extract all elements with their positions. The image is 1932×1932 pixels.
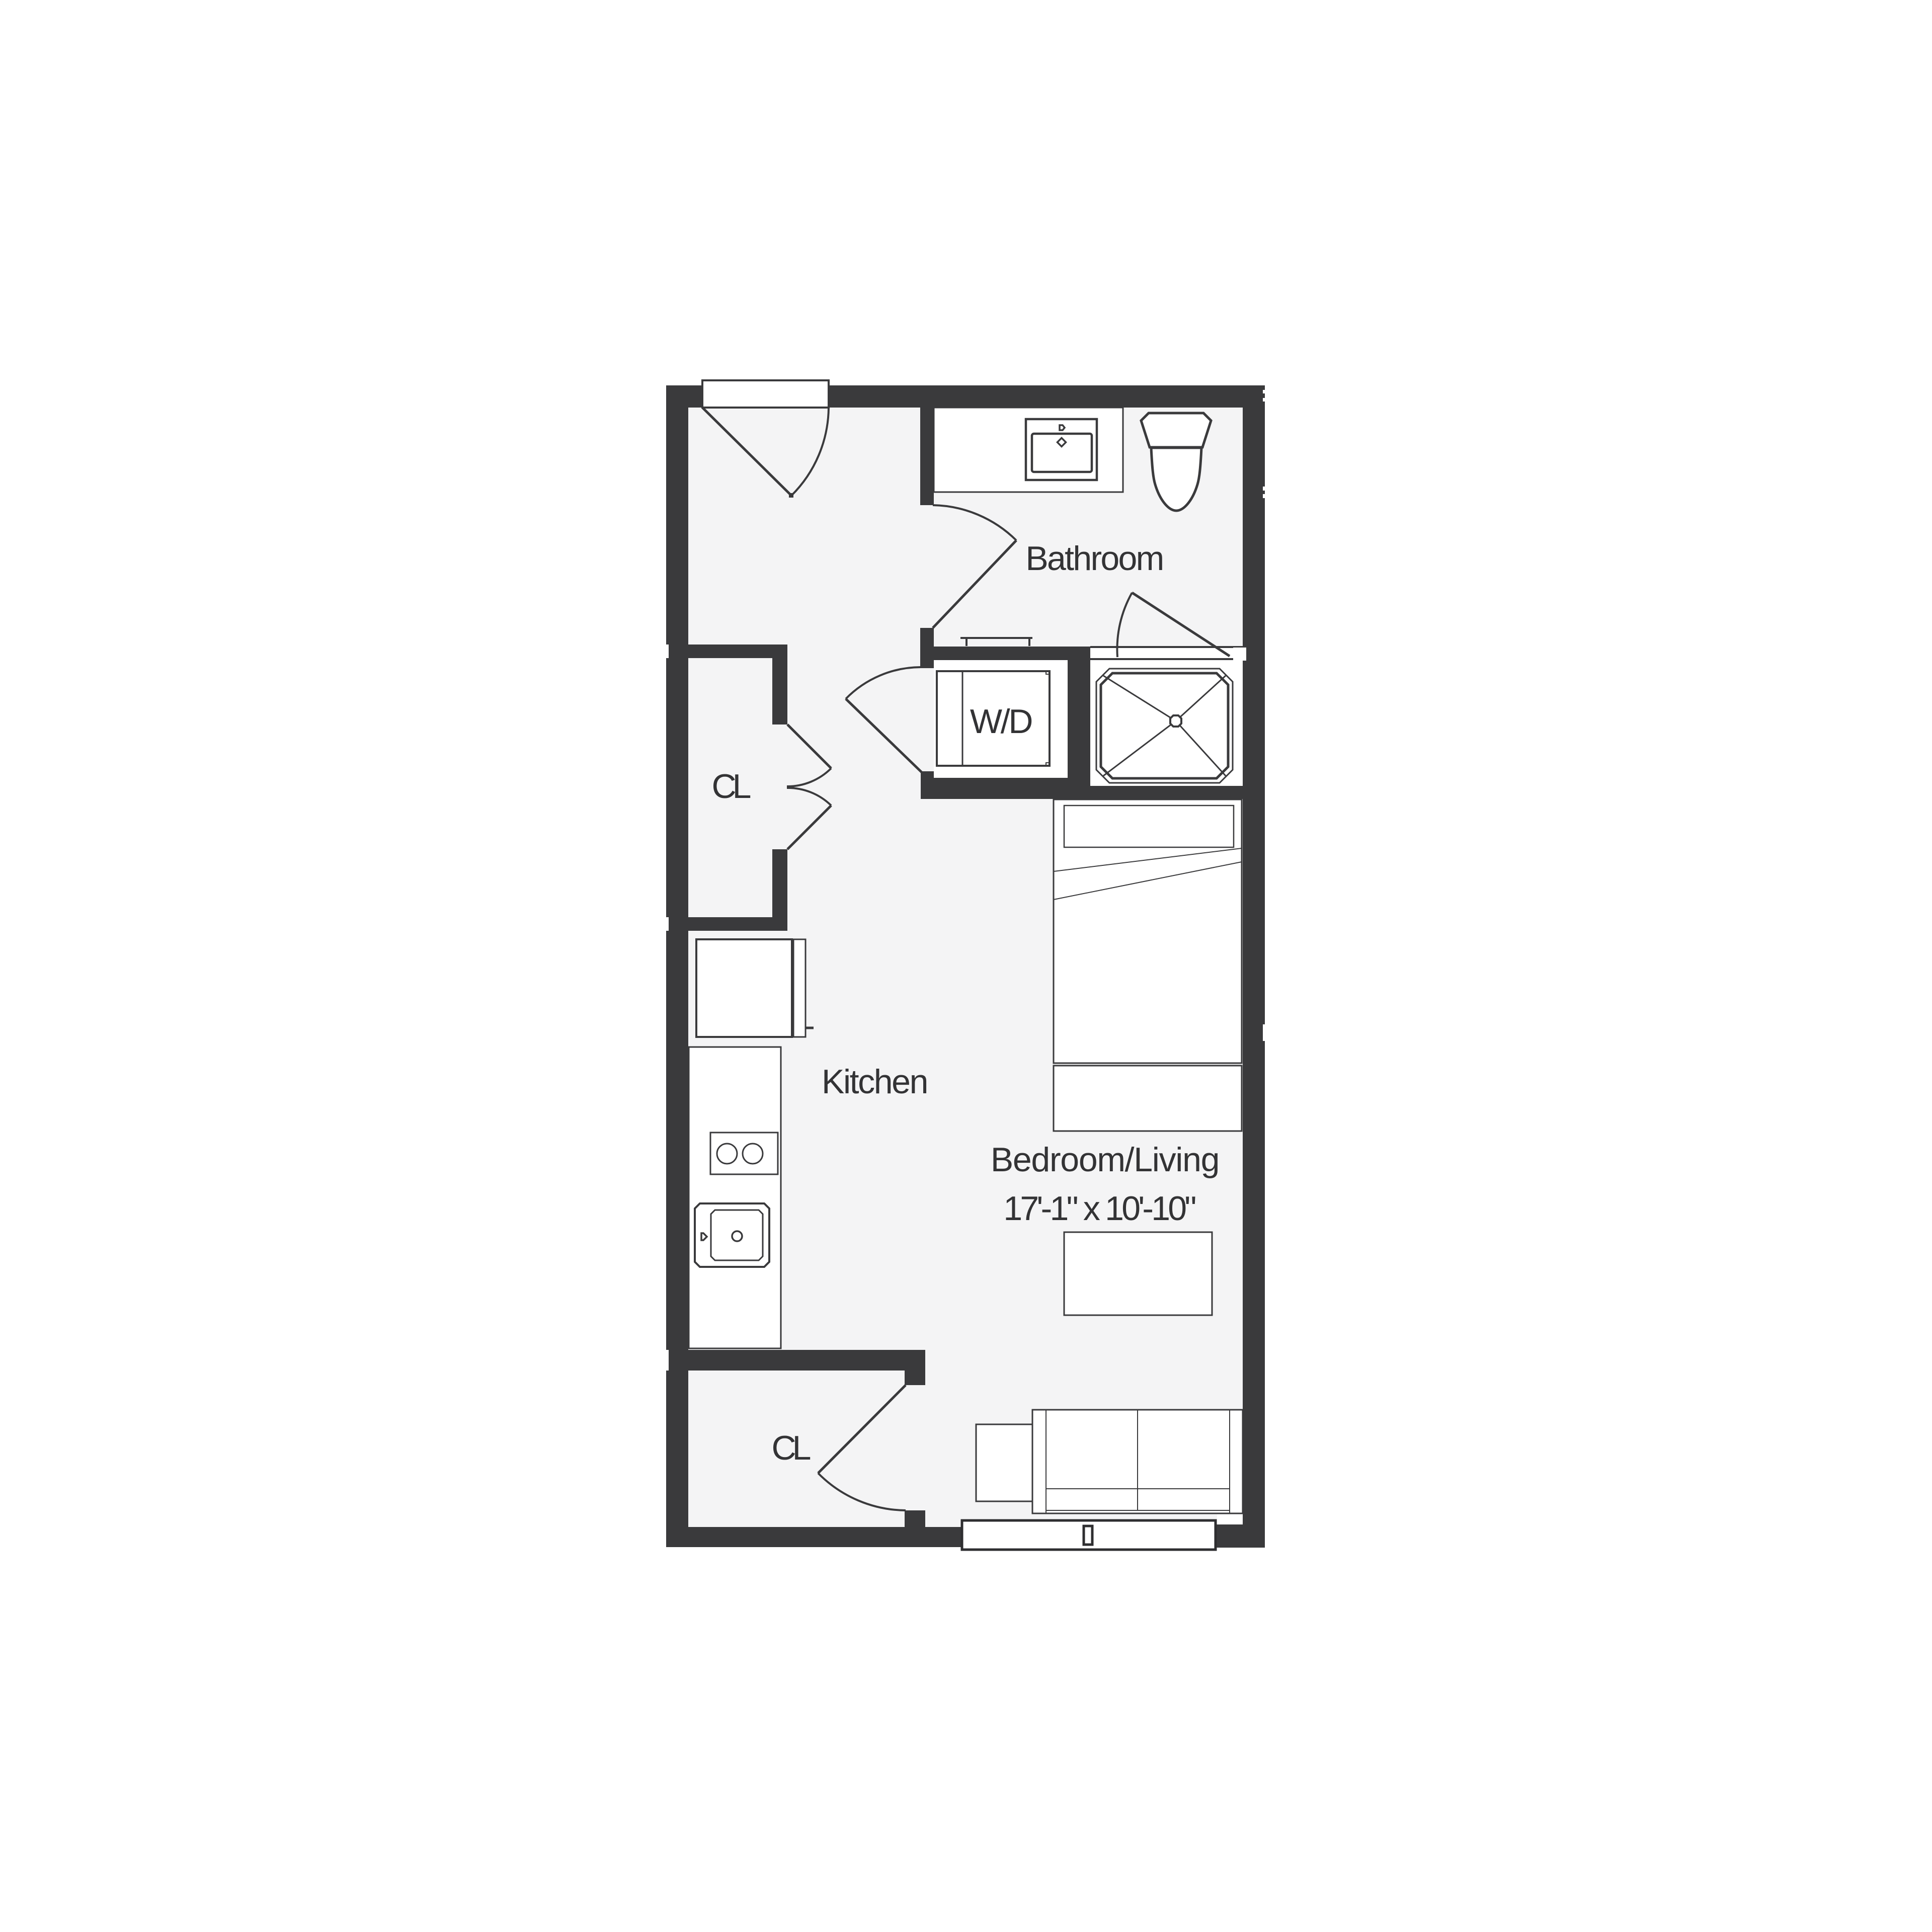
svg-text:Bedroom/Living: Bedroom/Living <box>991 1141 1219 1179</box>
svg-text:CL: CL <box>772 1429 811 1467</box>
svg-text:Kitchen: Kitchen <box>822 1063 927 1101</box>
svg-text:17'-1" x 10'-10": 17'-1" x 10'-10" <box>1003 1189 1195 1228</box>
svg-text:CL: CL <box>712 767 751 806</box>
svg-text:Bathroom: Bathroom <box>1025 539 1163 578</box>
svg-text:W/D: W/D <box>970 702 1031 741</box>
